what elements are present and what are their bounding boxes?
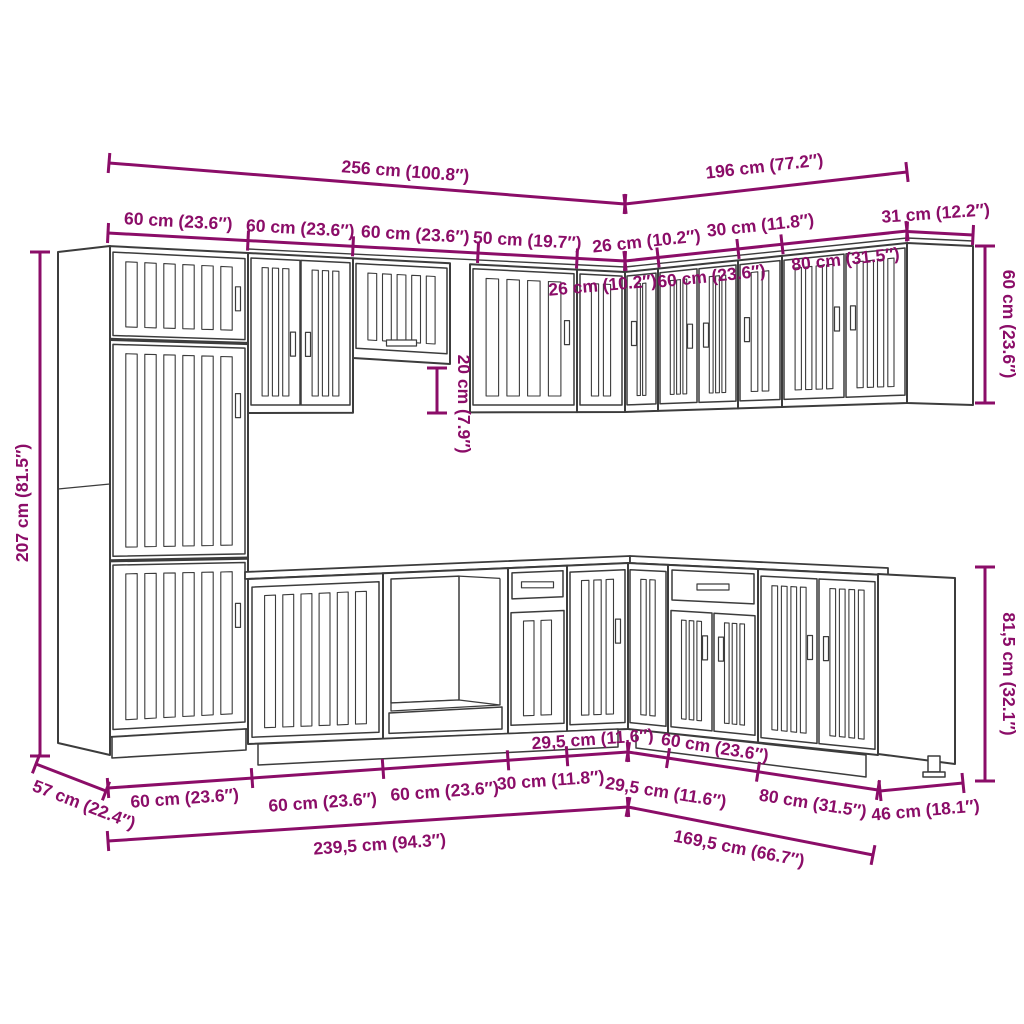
dim-label-depth-left: 57 cm (22.4″) — [30, 776, 139, 834]
cabinet-shape — [732, 623, 737, 724]
cabinet-shape — [670, 280, 674, 394]
dim-label-wall-left-4: 50 cm (19.7″) — [473, 227, 582, 253]
dim-label-bottom-total-right: 169,5 cm (66.7″) — [672, 826, 806, 871]
dim-label-wall-left-2: 60 cm (23.6″) — [246, 215, 355, 241]
cabinet-shape — [522, 582, 554, 588]
cabinet-shape — [164, 573, 175, 718]
cabinet-shape — [923, 772, 945, 777]
cabinet-shape — [221, 357, 232, 546]
cabinet-shape — [688, 324, 693, 348]
cabinet-shape — [725, 623, 730, 724]
cabinet-shape — [524, 621, 535, 716]
cabinet-shape — [283, 269, 289, 397]
cabinet-shape — [719, 637, 724, 661]
dimension-tick — [879, 781, 881, 801]
cabinet-shape — [641, 579, 646, 715]
cabinet-shape — [486, 278, 499, 396]
cabinet-shape — [183, 265, 194, 329]
cabinet-shape — [791, 587, 797, 733]
cabinet-shape — [397, 275, 406, 343]
dim-label-wall-height-right: 60 cm (23.6″) — [999, 270, 1019, 379]
dim-label-top-total-left: 256 cm (100.8″) — [341, 156, 470, 185]
cabinet-shape — [632, 322, 637, 346]
cabinet-shape — [827, 264, 833, 389]
cabinet-shape — [183, 573, 194, 717]
cabinet-shape — [722, 275, 726, 393]
dimension-tick — [108, 153, 110, 173]
cabinet-shape — [301, 594, 312, 727]
dimension-tick — [107, 831, 108, 851]
dim-label-wall-gap: 20 cm (7.9″) — [454, 355, 474, 454]
cabinet-line-art — [58, 238, 973, 777]
dimension-tick — [973, 225, 974, 245]
cabinet-shape — [630, 570, 666, 727]
cabinet-shape — [697, 584, 729, 590]
cabinet-shape — [677, 280, 681, 395]
dimension-line — [907, 232, 973, 236]
cabinet-shape — [319, 593, 330, 726]
cabinet-shape — [426, 276, 435, 344]
cabinet-shape — [126, 574, 137, 720]
cabinet-shape — [368, 273, 377, 340]
dimension-tick — [906, 162, 908, 182]
cabinet-shape — [356, 591, 367, 724]
diagram-canvas: 256 cm (100.8″) 196 cm (77.2″) 60 cm (23… — [0, 0, 1024, 1024]
cabinet-shape — [126, 262, 137, 328]
cabinet-shape — [333, 271, 339, 396]
cabinet-shape — [697, 621, 702, 721]
cabinet-shape — [857, 261, 863, 388]
cabinet-shape — [511, 611, 564, 726]
dimension-tick — [107, 778, 108, 798]
cabinet-shape — [851, 306, 856, 330]
dimension-tick — [108, 223, 109, 243]
cabinet-shape — [272, 268, 278, 396]
cabinet-shape — [781, 586, 787, 731]
cabinet-shape — [322, 271, 328, 397]
dim-label-base-left-4: 30 cm (11.8″) — [496, 766, 605, 793]
cabinet-shape — [391, 576, 459, 703]
dim-label-wall-right-return: 31 cm (12.2″) — [881, 199, 991, 227]
cabinet-shape — [858, 590, 864, 739]
cabinet-shape — [565, 321, 570, 345]
cabinet-shape — [800, 587, 806, 733]
dimension-tick — [507, 750, 508, 770]
cabinet-shape — [643, 283, 646, 395]
dimension-line — [880, 783, 963, 791]
cabinet-shape — [145, 573, 156, 718]
cabinet-shape — [164, 355, 175, 547]
cabinet-shape — [202, 356, 213, 546]
cabinet-shape — [507, 279, 520, 396]
cabinet-shape — [867, 260, 873, 387]
cabinet-shape — [603, 284, 610, 396]
cabinet-shape — [689, 621, 694, 721]
cabinet-shape — [312, 270, 318, 396]
cabinet-shape — [145, 263, 156, 328]
cabinet-shape — [283, 594, 294, 727]
cabinet-shape — [616, 619, 621, 643]
cabinet-shape — [383, 274, 392, 342]
cabinet-shape — [839, 589, 845, 737]
dim-label-base-right-3: 80 cm (31.5″) — [758, 785, 868, 822]
cabinet-shape — [751, 272, 758, 392]
dim-label-base-left-1: 60 cm (23.6″) — [130, 784, 240, 812]
cabinet-shape — [541, 620, 552, 715]
cabinet-shape — [594, 580, 601, 715]
cabinet-shape — [58, 246, 110, 755]
cabinet-shape — [878, 259, 884, 387]
cabinet-shape — [145, 354, 156, 546]
dimension-tick — [871, 845, 875, 865]
kitchen-dimension-diagram: 256 cm (100.8″) 196 cm (77.2″) 60 cm (23… — [0, 0, 1024, 1024]
dimension-tick — [251, 768, 252, 788]
cabinet-shape — [716, 276, 720, 393]
cabinet-shape — [126, 354, 137, 547]
cabinet-shape — [806, 266, 812, 389]
cabinet-shape — [291, 332, 296, 356]
dim-label-wall-left-3: 60 cm (23.6″) — [361, 221, 470, 247]
dim-label-height-tall: 207 cm (81.5″) — [12, 444, 32, 562]
dimension-line — [625, 172, 907, 204]
cabinet-shape — [236, 287, 241, 311]
cabinet-shape — [824, 637, 829, 661]
cabinet-shape — [637, 284, 640, 396]
dim-label-base-right-1: 29,5 cm (11.6″) — [604, 773, 728, 812]
cabinet-shape — [164, 264, 175, 329]
cabinet-shape — [387, 340, 417, 346]
dim-label-wall-left-1: 60 cm (23.6″) — [124, 208, 233, 234]
dimension-tick — [382, 759, 383, 779]
dim-label-base-left-3: 60 cm (23.6″) — [390, 777, 500, 805]
cabinet-shape — [221, 572, 232, 715]
dim-label-base-height-right: 81,5 cm (32.1″) — [999, 612, 1019, 735]
cabinet-shape — [682, 620, 687, 719]
cabinet-shape — [928, 756, 940, 772]
cabinet-shape — [236, 603, 241, 627]
cabinet-shape — [762, 271, 769, 391]
cabinet-shape — [830, 589, 836, 737]
cabinet-shape — [795, 267, 801, 390]
cabinet-shape — [703, 636, 708, 660]
dim-label-wall-right-3: 30 cm (11.8″) — [706, 209, 815, 240]
cabinet-shape — [412, 275, 421, 343]
dimension-tick — [962, 773, 964, 793]
cabinet-shape — [849, 589, 855, 738]
cabinet-shape — [683, 279, 687, 394]
cabinet-shape — [236, 394, 241, 418]
cabinet-shape — [606, 579, 613, 714]
dim-label-top-total-right: 196 cm (77.2″) — [704, 149, 824, 182]
cabinet-shape — [907, 243, 973, 405]
cabinet-shape — [221, 266, 232, 330]
cabinet-shape — [888, 258, 894, 387]
dimension-tick — [657, 248, 659, 268]
cabinet-shape — [816, 265, 822, 389]
dim-label-wall-right-1: 26 cm (10.2″) — [591, 225, 701, 256]
dim-label-depth-right: 46 cm (18.1″) — [871, 795, 981, 824]
cabinet-shape — [709, 276, 713, 393]
cabinet-shape — [907, 238, 973, 241]
cabinet-shape — [650, 580, 655, 716]
cabinet-shape — [265, 595, 276, 728]
cabinet-shape — [202, 266, 213, 330]
dim-label-base-left-2: 60 cm (23.6″) — [268, 788, 378, 816]
cabinet-shape — [306, 332, 311, 356]
cabinet-shape — [740, 624, 745, 725]
cabinet-shape — [202, 572, 213, 715]
cabinet-shape — [835, 307, 840, 331]
cabinet-shape — [819, 579, 875, 749]
cabinet-shape — [772, 586, 778, 731]
cabinet-shape — [704, 323, 709, 347]
cabinet-shape — [591, 284, 598, 396]
cabinet-shape — [808, 636, 813, 660]
cabinet-shape — [878, 574, 955, 764]
cabinet-shape — [582, 580, 589, 715]
cabinet-shape — [337, 592, 348, 725]
dim-label-bottom-total-left: 239,5 cm (94.3″) — [313, 829, 447, 858]
cabinet-shape — [528, 281, 541, 397]
cabinet-shape — [183, 355, 194, 546]
dimension-tick — [757, 762, 760, 782]
cabinet-shape — [262, 268, 268, 397]
cabinet-shape — [745, 318, 750, 342]
